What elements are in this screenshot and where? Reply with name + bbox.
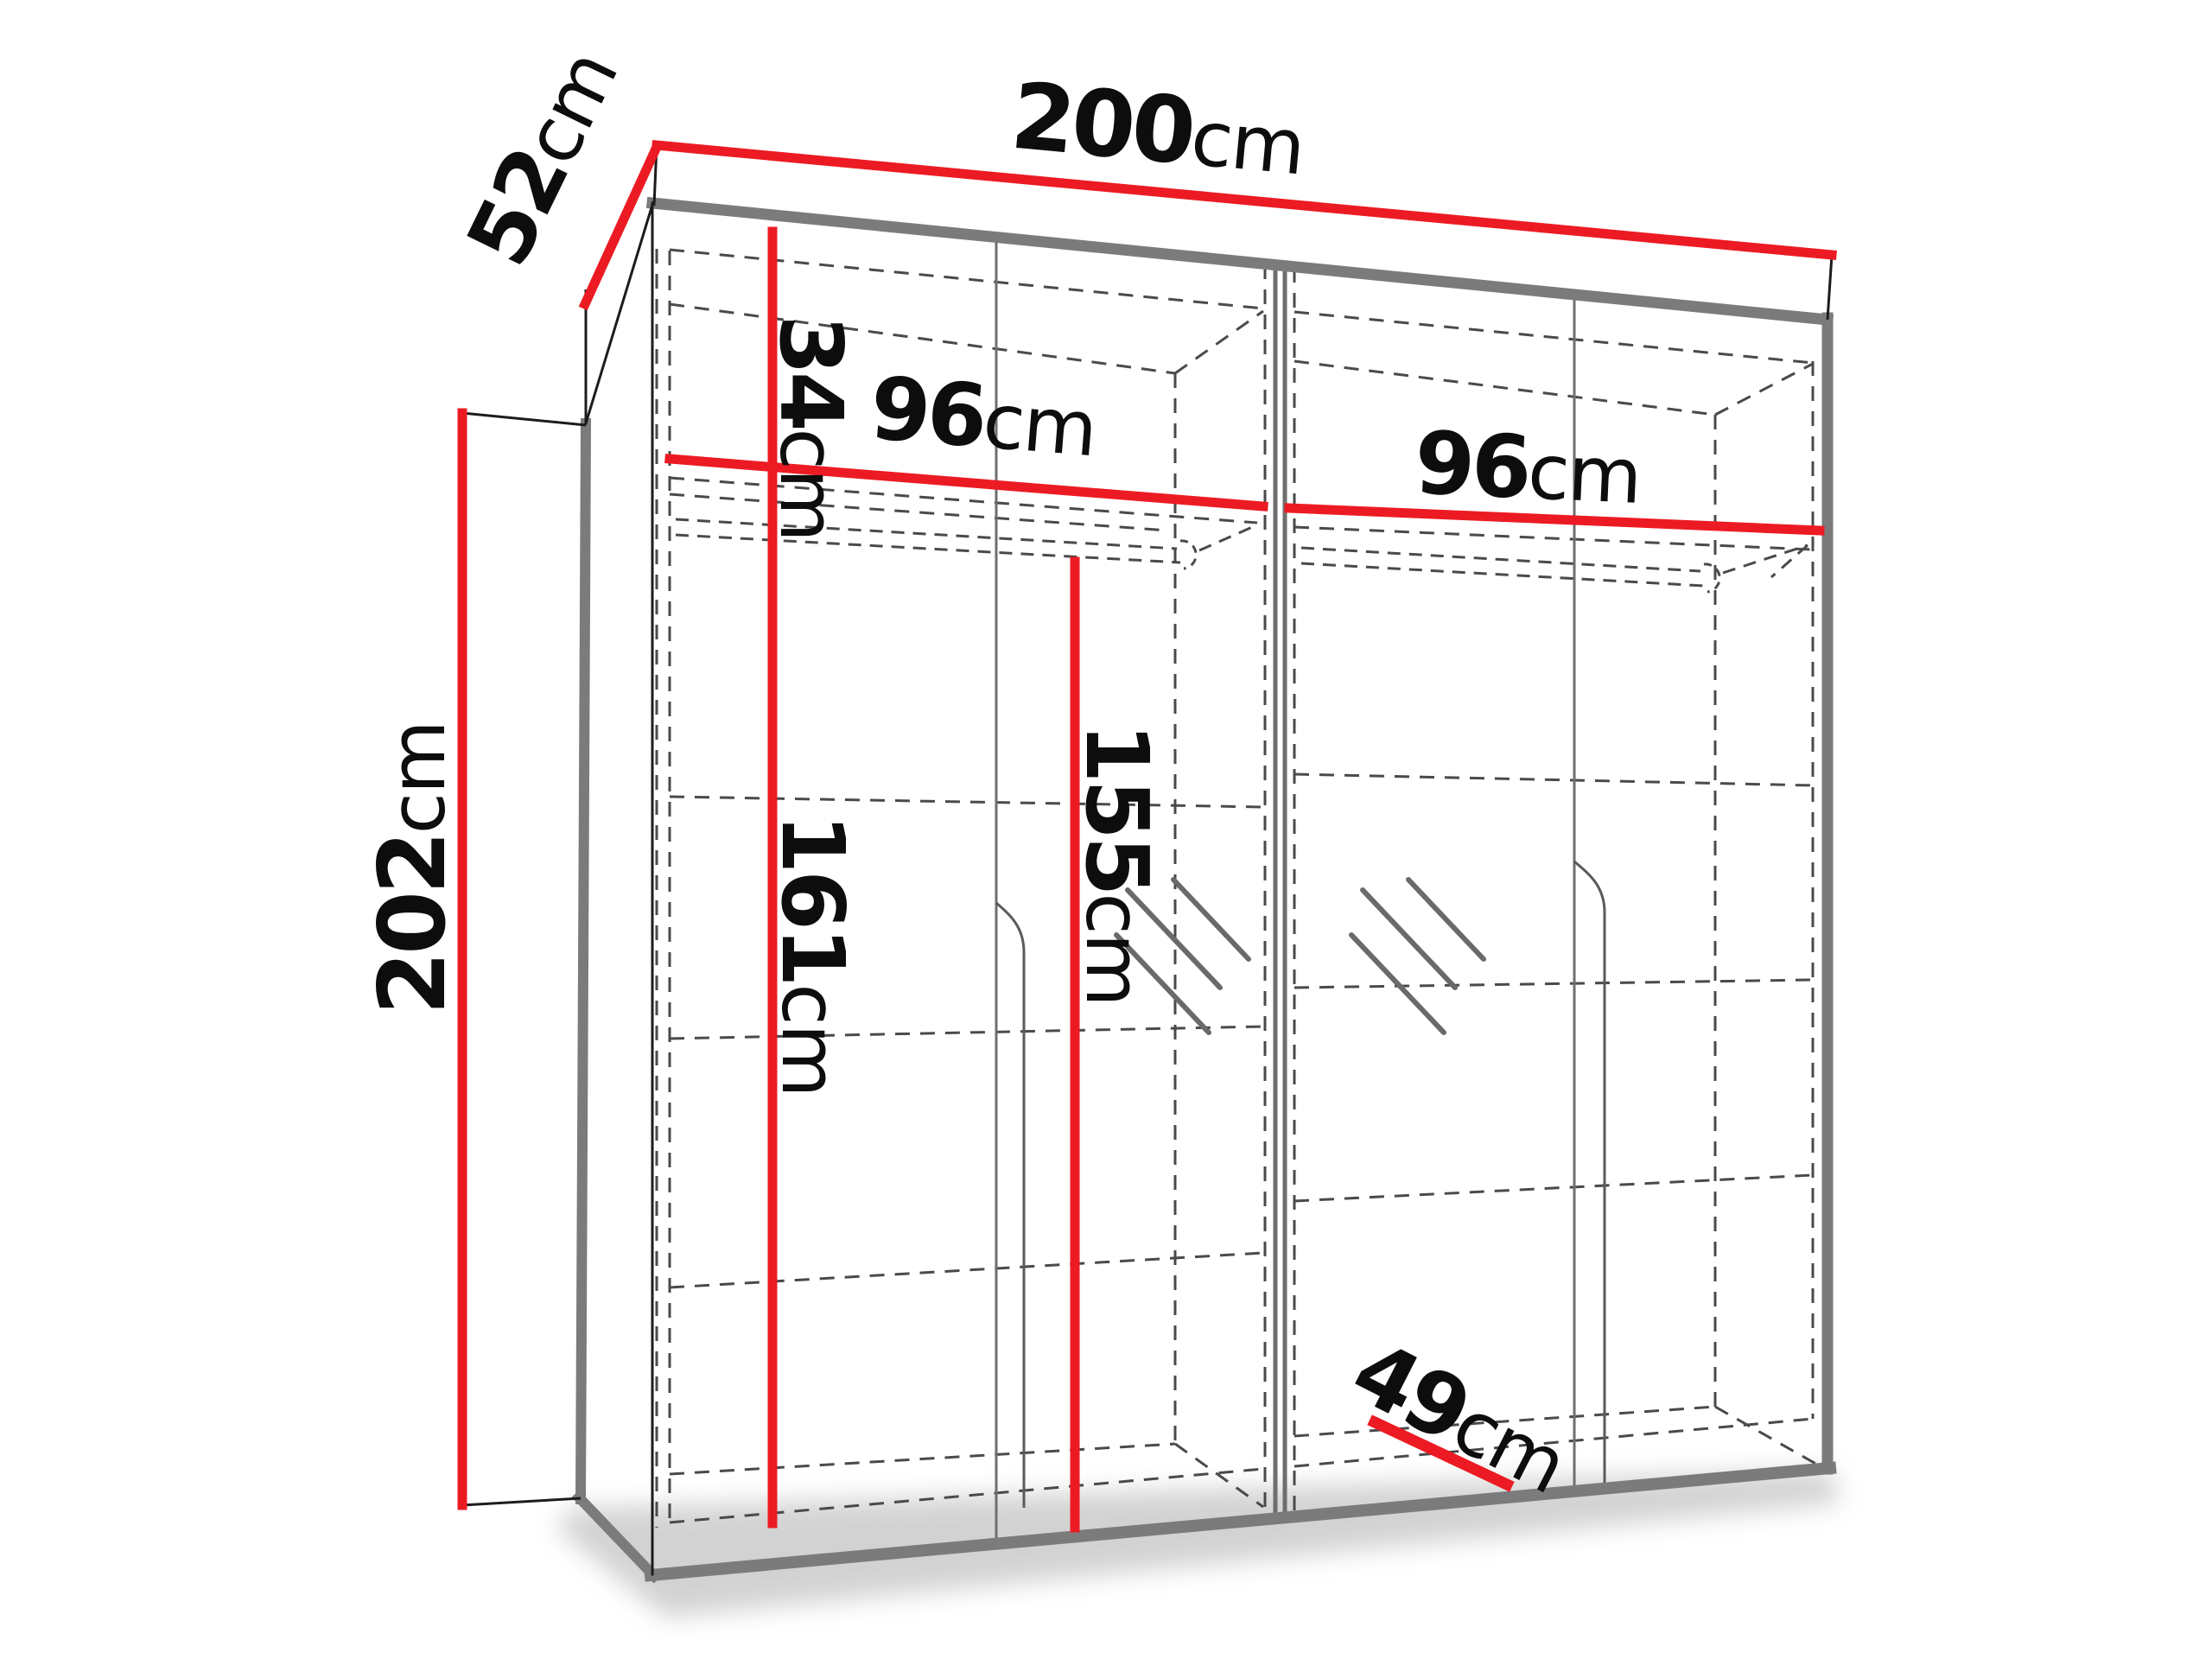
glint-stroke <box>1351 935 1444 1033</box>
left-side-back-edge <box>581 423 586 1499</box>
left-top-shelf-back-dash <box>670 494 1168 531</box>
dimension-label-hanging-rail-height: 155cm <box>1073 723 1160 1006</box>
left-rod-diagonal <box>1199 524 1258 550</box>
dimension-value: 161 <box>762 814 863 984</box>
dimension-unit: cm <box>765 983 854 1096</box>
right-ceiling-diagonal <box>1715 364 1813 415</box>
top-front-edge <box>652 203 1827 320</box>
dimension-label-left-section-width: 96cm <box>868 365 1099 470</box>
right-rod-front-line <box>1301 563 1704 586</box>
height-bottom-tick <box>462 1498 581 1505</box>
height-top-tick <box>462 413 586 425</box>
right-door-handle <box>1574 861 1605 1484</box>
left-rod-back-line <box>676 519 1177 549</box>
dimension-unit: cm <box>1526 427 1643 521</box>
dimension-unit: cm <box>1187 93 1307 193</box>
wardrobe-dimension-diagram: 200cm 52cm 202cm 34cm 96cm 96cm 161cm 15… <box>0 0 2212 1659</box>
right-shelf-line-1 <box>1294 774 1813 785</box>
right-floor-diagonal <box>1715 1407 1825 1469</box>
right-rod-diagonal <box>1723 545 1808 573</box>
right-ceiling-back-edge <box>1294 361 1715 415</box>
dimension-value: 34 <box>760 315 861 428</box>
right-rod-back-line <box>1301 548 1700 571</box>
dimension-label-height: 202cm <box>367 721 459 1014</box>
dimension-label-right-section-width: 96cm <box>1413 420 1643 517</box>
dimension-value: 155 <box>1066 723 1167 893</box>
left-floor-back-edge <box>670 1444 1175 1474</box>
right-rod-end-hook <box>1704 564 1719 592</box>
width-right-tick <box>1827 255 1832 320</box>
dimension-label-top-compartment: 34cm <box>767 315 854 540</box>
dimension-value: 96 <box>1413 412 1530 518</box>
right-shelf-line-3 <box>1294 1175 1813 1201</box>
dimension-label-lower-interior-height: 161cm <box>769 814 855 1096</box>
glint-stroke <box>1363 890 1455 988</box>
left-ceiling-diagonal <box>1175 311 1263 373</box>
dimension-unit: cm <box>980 376 1099 474</box>
right-shelf-line-2 <box>1294 980 1813 988</box>
dimension-unit: cm <box>763 429 852 541</box>
right-mirror-glint <box>1351 880 1484 1033</box>
left-rod-end-hook <box>1180 541 1196 569</box>
dimension-unit: cm <box>1069 893 1158 1005</box>
floor-shadow <box>557 1471 1839 1618</box>
left-rod-front-line <box>676 535 1180 563</box>
left-door-handle <box>996 903 1024 1508</box>
dimension-value: 96 <box>867 358 988 467</box>
dimension-value: 202 <box>359 834 466 1014</box>
dimension-unit: cm <box>373 721 462 834</box>
dimension-value: 200 <box>1007 63 1197 186</box>
top-inner-edge-right <box>1294 312 1813 363</box>
